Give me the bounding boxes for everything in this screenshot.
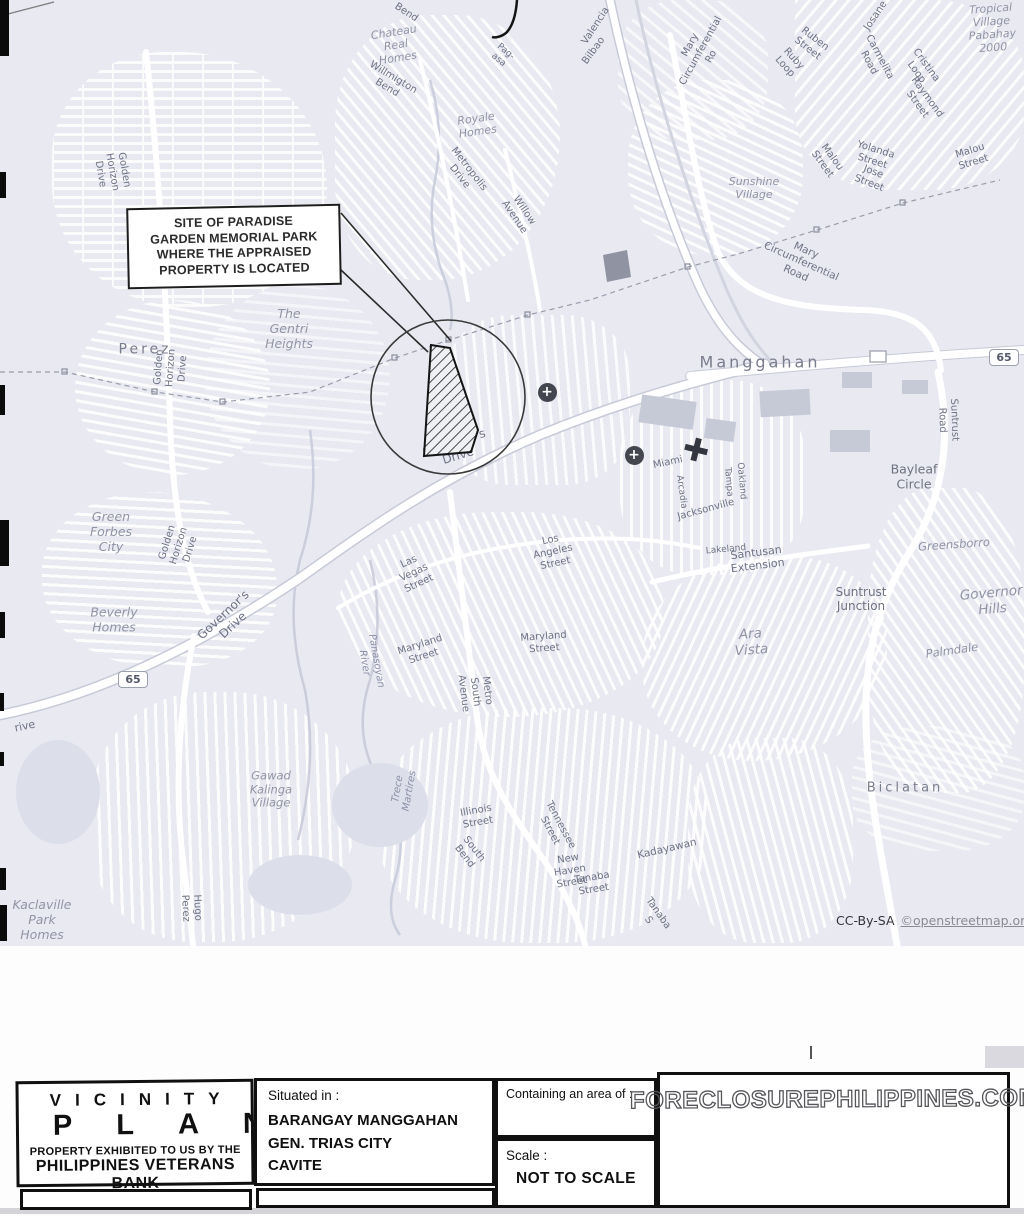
scan-artifact xyxy=(985,1046,1024,1068)
scan-artifact xyxy=(0,752,4,766)
scan-artifact xyxy=(0,172,6,198)
redaction-box xyxy=(20,1189,252,1210)
annotation-layer xyxy=(0,0,1024,946)
scan-artifact xyxy=(810,1046,812,1059)
map-area: BendPag-asaChateau Real HomesWillmigton … xyxy=(0,0,1024,946)
area-label: Containing an area of : xyxy=(506,1087,632,1101)
redaction-box xyxy=(256,1188,495,1208)
scan-artifact xyxy=(0,905,7,941)
vicinity-plan-scan: BendPag-asaChateau Real HomesWillmigton … xyxy=(0,0,1024,1216)
scan-artifact xyxy=(0,612,5,638)
callout-leader-line xyxy=(341,270,428,352)
route-shield: 65 xyxy=(118,671,148,688)
title-block-scale: Scale : NOT TO SCALE xyxy=(495,1138,657,1208)
scan-artifact xyxy=(0,868,6,890)
site-polygon xyxy=(424,345,478,456)
hospital-icon: + xyxy=(538,383,557,402)
callout-box: SITE OF PARADISE GARDEN MEMORIAL PARK WH… xyxy=(126,204,342,289)
attribution-link: ©openstreetmap.org xyxy=(901,913,1024,928)
scan-artifact xyxy=(0,385,5,415)
scan-artifact xyxy=(0,520,9,566)
route-shield: 65 xyxy=(989,349,1019,366)
situated-value: BARANGAY MANGGAHAN GEN. TRIAS CITY CAVIT… xyxy=(268,1110,492,1178)
watermark: FORECLOSUREPHILIPPINES.COM xyxy=(630,1085,1022,1116)
map-attribution: CC-By-SA©openstreetmap.org xyxy=(836,913,1024,928)
attribution-license: CC-By-SA xyxy=(836,913,895,928)
title-block-vicinity-plan: VICINITY PLAN PROPERTY EXHIBITED TO US B… xyxy=(15,1079,254,1187)
title-block-situated: Situated in : BARANGAY MANGGAHAN GEN. TR… xyxy=(254,1078,495,1186)
plan-title: PLAN xyxy=(19,1109,251,1142)
scan-artifact xyxy=(0,693,4,711)
scan-artifact xyxy=(0,0,9,56)
scale-value: NOT TO SCALE xyxy=(516,1170,654,1188)
situated-label: Situated in : xyxy=(268,1088,492,1103)
pen-mark xyxy=(492,0,517,37)
scale-label: Scale : xyxy=(506,1148,654,1163)
hospital-icon: + xyxy=(625,446,644,465)
